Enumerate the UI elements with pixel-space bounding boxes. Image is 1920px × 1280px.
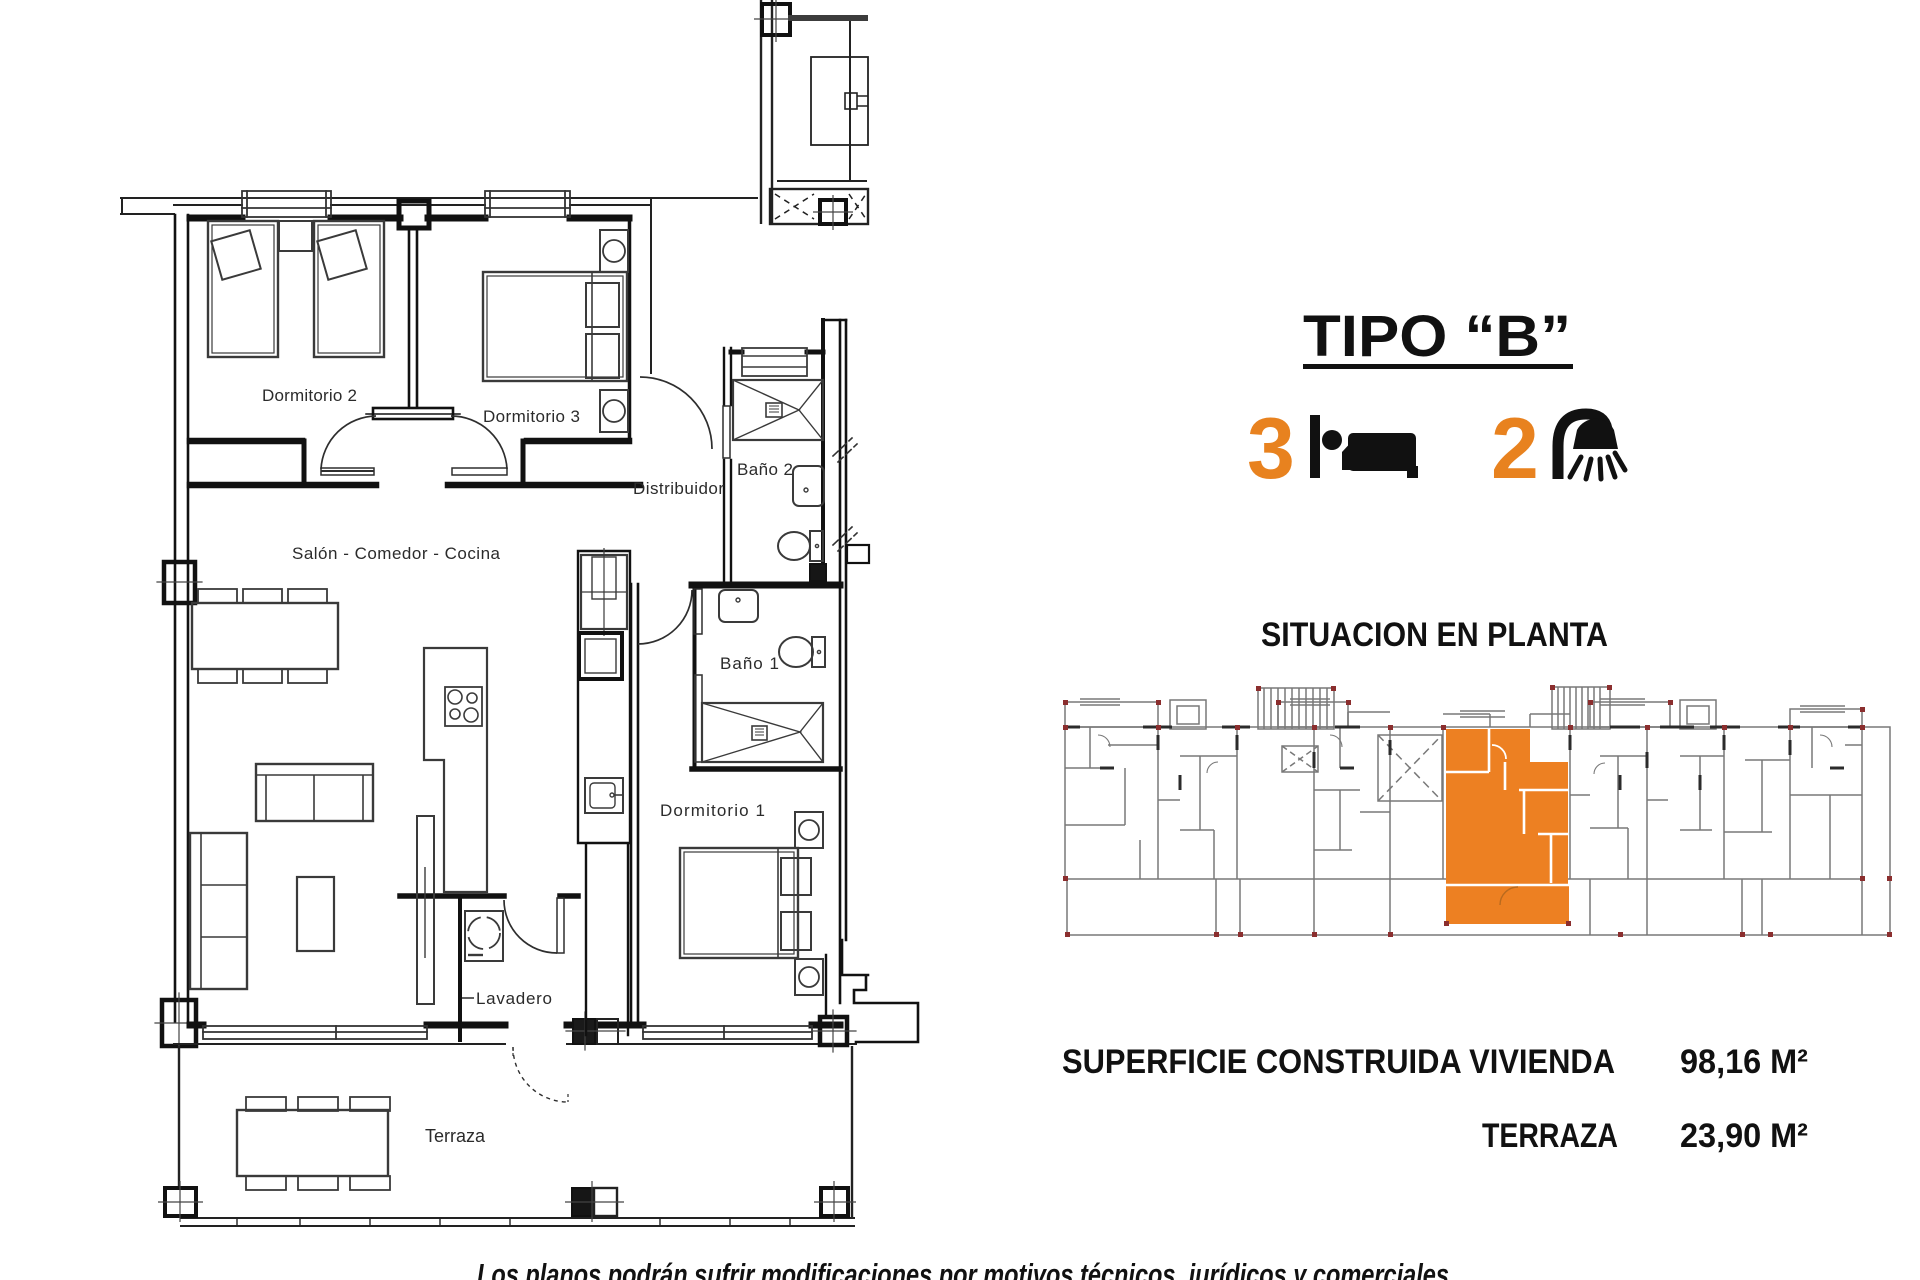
svg-text:SUPERFICIE CONSTRUIDA VIVIENDA: SUPERFICIE CONSTRUIDA VIVIENDA <box>1062 1043 1615 1081</box>
svg-text:Dormitorio 3: Dormitorio 3 <box>483 407 580 426</box>
svg-text:Dormitorio 1: Dormitorio 1 <box>660 801 765 820</box>
svg-text:Salón - Comedor - Cocina: Salón - Comedor - Cocina <box>292 544 501 563</box>
svg-text:SITUACION EN PLANTA: SITUACION EN PLANTA <box>1261 616 1608 654</box>
svg-text:TERRAZA: TERRAZA <box>1482 1117 1618 1155</box>
svg-text:98,16 M²: 98,16 M² <box>1680 1043 1808 1081</box>
svg-text:Baño 1: Baño 1 <box>720 654 779 673</box>
svg-text:23,90 M²: 23,90 M² <box>1680 1117 1808 1155</box>
svg-text:TIPO “B”: TIPO “B” <box>1303 304 1571 369</box>
svg-text:Baño 2: Baño 2 <box>737 460 793 479</box>
svg-text:Los planos podrán sufrir modif: Los planos podrán sufrir modificaciones … <box>477 1257 1449 1280</box>
svg-text:3: 3 <box>1247 401 1295 497</box>
svg-text:Terraza: Terraza <box>425 1126 486 1146</box>
svg-text:Dormitorio 2: Dormitorio 2 <box>262 386 357 405</box>
svg-text:Lavadero: Lavadero <box>476 989 552 1008</box>
svg-text:2: 2 <box>1491 401 1539 497</box>
svg-text:Distribuidor: Distribuidor <box>633 479 724 498</box>
